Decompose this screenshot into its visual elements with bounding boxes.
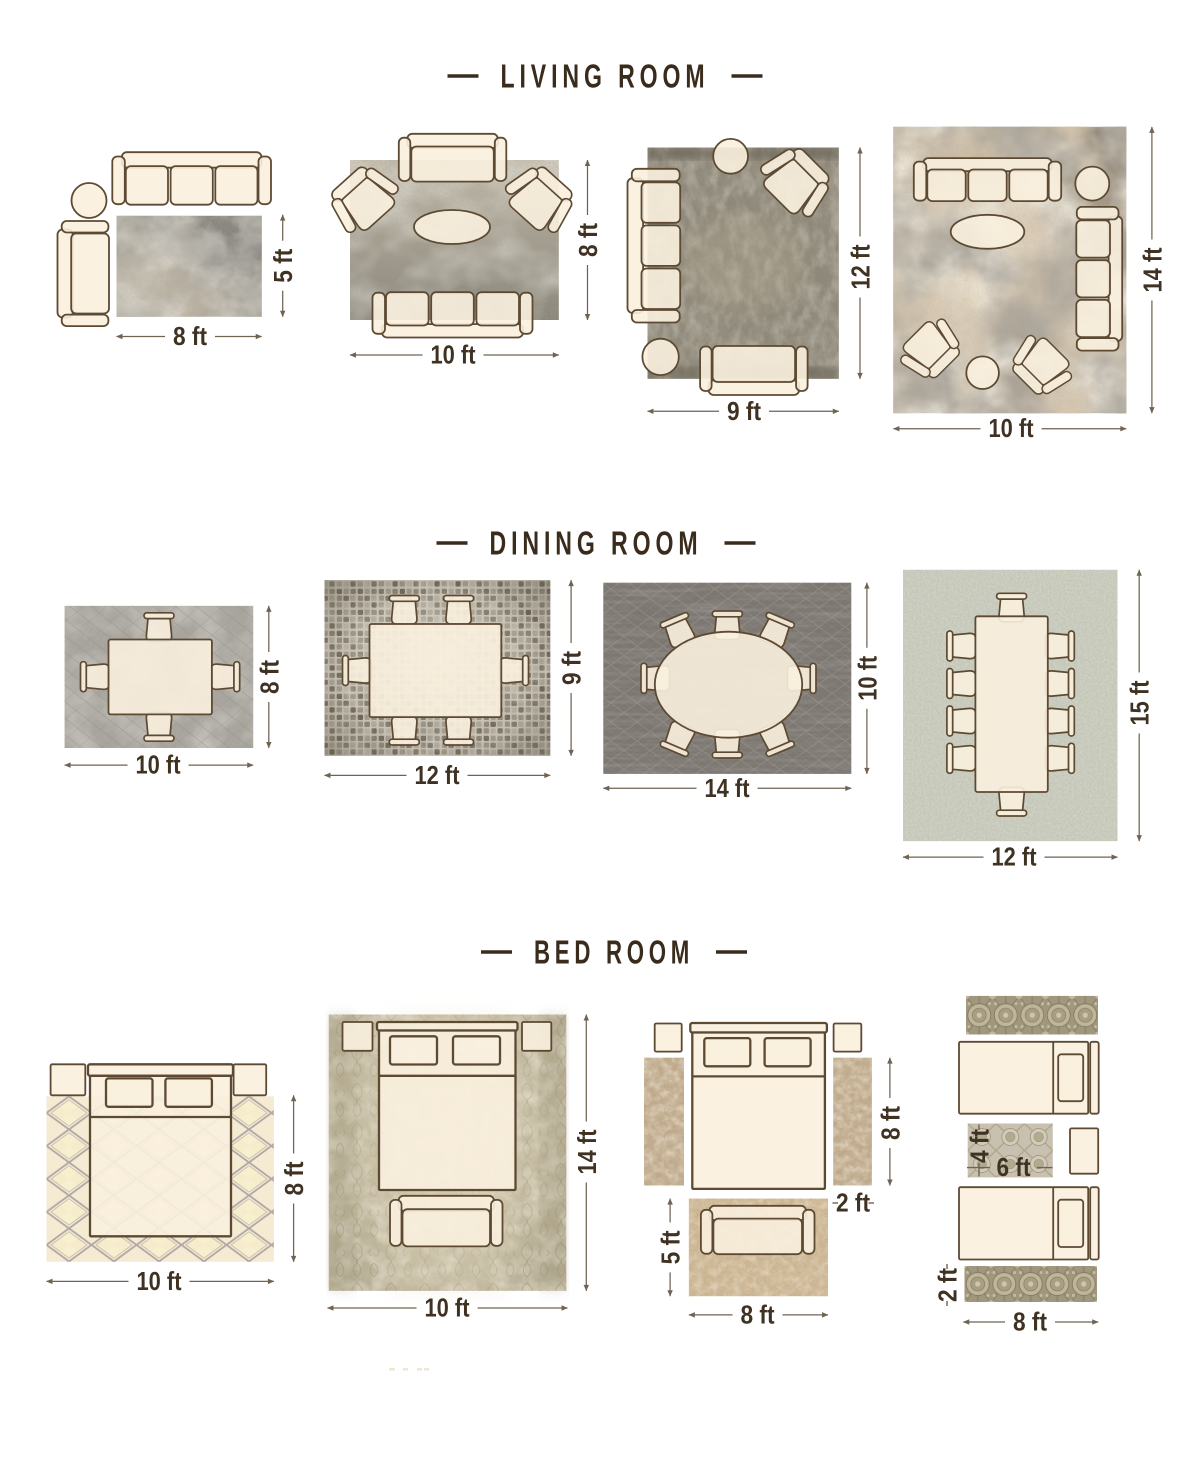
svg-text:8 ft: 8 ft [1013,1307,1047,1337]
svg-text:2 ft: 2 ft [933,1268,963,1302]
svg-text:10 ft: 10 ft [989,413,1034,443]
svg-text:10 ft: 10 ft [431,340,476,370]
svg-text:8 ft: 8 ft [254,660,284,694]
svg-text:9 ft: 9 ft [557,651,587,685]
svg-text:15 ft: 15 ft [1125,680,1155,725]
svg-text:10 ft: 10 ft [137,1266,182,1296]
svg-text:6 ft: 6 ft [997,1152,1031,1182]
svg-text:8 ft: 8 ft [279,1161,309,1195]
svg-text:10 ft: 10 ft [425,1293,470,1323]
svg-text:14 ft: 14 ft [1137,247,1167,292]
svg-text:8 ft: 8 ft [875,1106,905,1140]
svg-text:LIVING ROOM: LIVING ROOM [501,58,710,95]
svg-text:4 ft: 4 ft [965,1129,995,1163]
svg-text:12 ft: 12 ft [992,842,1037,872]
svg-text:BED ROOM: BED ROOM [534,934,694,971]
svg-text:8 ft: 8 ft [573,223,603,257]
svg-text:12 ft: 12 ft [846,244,876,289]
svg-text:8 ft: 8 ft [741,1299,775,1329]
svg-text:DINING ROOM: DINING ROOM [490,525,703,562]
svg-text:5 ft: 5 ft [268,248,298,282]
svg-text:2 ft: 2 ft [836,1188,870,1218]
svg-text:14 ft: 14 ft [705,773,750,803]
svg-text:10 ft: 10 ft [136,750,181,780]
svg-text:10 ft: 10 ft [852,656,882,701]
svg-text:9 ft: 9 ft [727,396,761,426]
svg-text:12 ft: 12 ft [415,760,460,790]
svg-text:5 ft: 5 ft [656,1230,686,1264]
svg-text:14 ft: 14 ft [572,1129,602,1174]
svg-text:8 ft: 8 ft [173,321,207,351]
